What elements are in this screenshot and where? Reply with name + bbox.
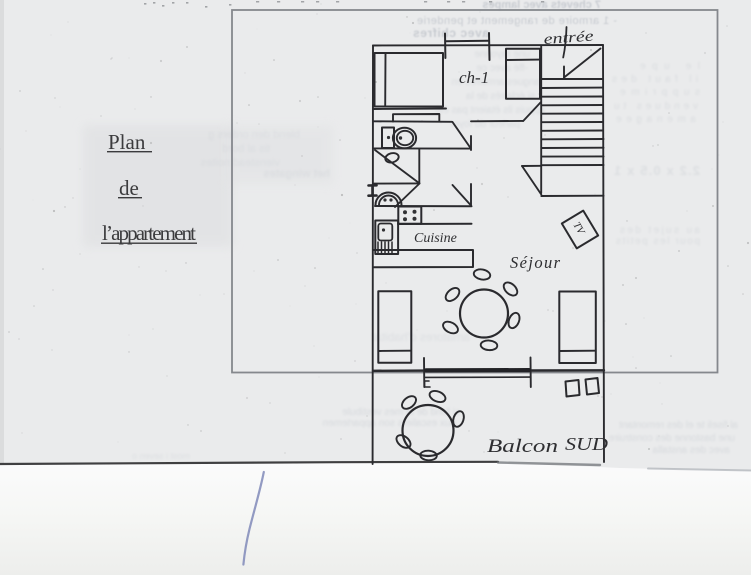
svg-text:blend den orders g: blend den orders g	[208, 129, 300, 141]
svg-text:avec chifres: avec chifres	[413, 26, 489, 40]
svg-text:l’appartement: l’appartement	[102, 221, 196, 245]
svg-text:het wingates: het wingates	[263, 168, 330, 180]
svg-text:al fiseli te el des remontant: al fiseli te el des remontant	[619, 420, 738, 431]
svg-text:si éclairés de la: si éclairés de la	[466, 91, 535, 102]
svg-text:Balcon: Balcon	[487, 437, 558, 457]
svg-text:une bastonne des construire: une bastonne des construire	[608, 433, 735, 444]
svg-text:Séjour: Séjour	[510, 253, 561, 272]
svg-text:aux escaliers son appartemen: aux escaliers son appartemen	[323, 418, 456, 429]
svg-text:vendues tu: vendues tu	[614, 101, 698, 112]
svg-text:pour les petits: pour les petits	[616, 236, 700, 247]
svg-text:tis al bord: tis al bord	[222, 143, 270, 155]
svg-text:SUD: SUD	[565, 434, 608, 454]
svg-text:de: de	[119, 176, 139, 200]
svg-text:ch-1: ch-1	[459, 68, 489, 87]
svg-text:most i seven o: most i seven o	[132, 451, 190, 461]
svg-text:vienstead noites: vienstead noites	[200, 157, 280, 169]
svg-text:2.2 x 0.5 x 1: 2.2 x 0.5 x 1	[614, 163, 700, 178]
svg-text:une rayonne: une rayonne	[474, 49, 530, 60]
svg-text:avec des anstalla: avec des anstalla	[652, 445, 730, 456]
svg-text:Plan: Plan	[108, 130, 146, 154]
svg-text:Cuisine: Cuisine	[414, 231, 457, 246]
svg-text:au sujet des: au sujet des	[620, 225, 700, 236]
